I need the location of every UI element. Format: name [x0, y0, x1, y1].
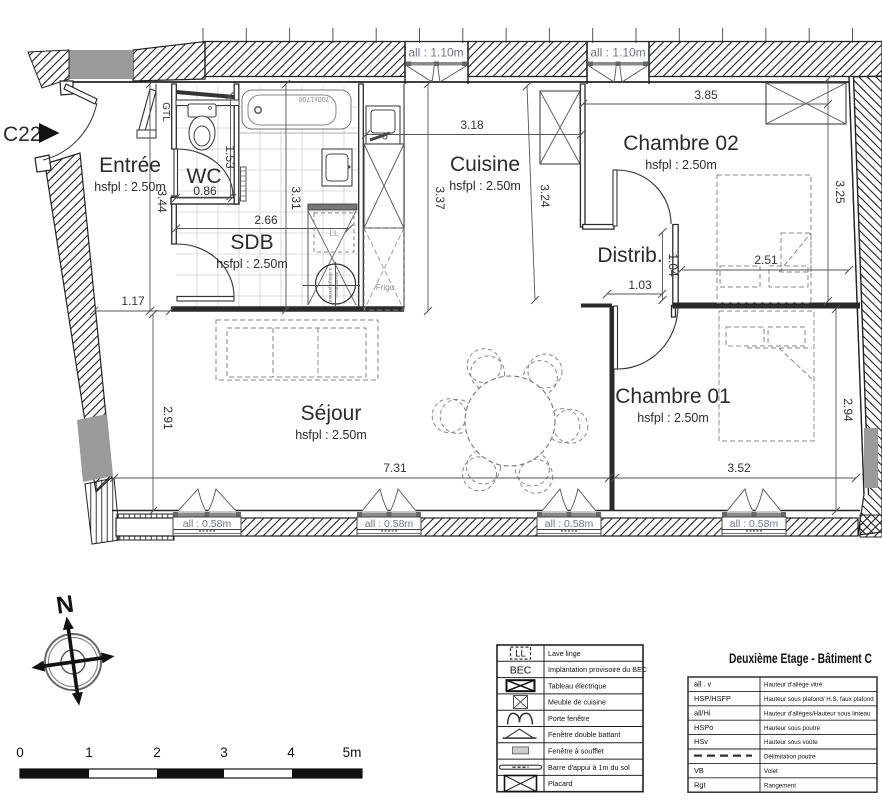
svg-text:all : 0.58m: all : 0.58m [365, 518, 414, 530]
svg-text:3: 3 [220, 745, 228, 760]
svg-text:Implantation provisoire du BEC: Implantation provisoire du BEC [548, 665, 647, 674]
svg-text:LL: LL [330, 229, 339, 238]
svg-text:hsfpl : 2.50m: hsfpl : 2.50m [637, 411, 709, 425]
svg-text:hsfpl : 2.50m: hsfpl : 2.50m [449, 179, 521, 193]
svg-text:Entrée: Entrée [99, 154, 161, 177]
svg-text:GTL: GTL [160, 102, 171, 122]
svg-text:1.53: 1.53 [223, 145, 237, 169]
svg-text:all/Hi: all/Hi [694, 708, 711, 717]
svg-text:Séjour: Séjour [301, 402, 362, 425]
svg-text:SDB: SDB [230, 231, 273, 254]
svg-text:Deuxième Etage - Bâtiment C: Deuxième Etage - Bâtiment C [729, 651, 872, 666]
svg-text:Meuble de cuisine: Meuble de cuisine [548, 698, 606, 707]
svg-text:Hauteur d'allège vitré: Hauteur d'allège vitré [764, 682, 823, 689]
svg-text:3.85: 3.85 [694, 88, 718, 102]
svg-text:a charge preneur: a charge preneur [328, 268, 333, 303]
svg-text:all : 1.10m: all : 1.10m [408, 46, 463, 60]
svg-text:2.91: 2.91 [161, 406, 175, 430]
svg-text:Délimitation poutre: Délimitation poutre [764, 754, 816, 761]
svg-text:3.52: 3.52 [727, 461, 751, 475]
svg-text:LL: LL [515, 649, 526, 660]
svg-text:WC: WC [187, 165, 222, 188]
svg-text:Hauteur sous voûte: Hauteur sous voûte [764, 739, 818, 746]
svg-text:hsfpl : 2.50m: hsfpl : 2.50m [216, 257, 288, 271]
svg-text:1.03: 1.03 [628, 278, 652, 292]
svg-text:BEC: BEC [510, 664, 532, 676]
svg-text:VB: VB [694, 766, 704, 775]
svg-text:4: 4 [287, 745, 295, 760]
svg-text:hsfpl : 2.50m: hsfpl : 2.50m [295, 428, 367, 442]
svg-text:hsfpl : 2.50m: hsfpl : 2.50m [94, 180, 166, 194]
svg-text:5m: 5m [343, 745, 362, 760]
svg-text:1: 1 [85, 745, 93, 760]
svg-text:2.94: 2.94 [841, 398, 855, 422]
svg-text:1.04: 1.04 [666, 253, 680, 277]
svg-text:3.24: 3.24 [538, 184, 553, 208]
svg-text:3.18: 3.18 [460, 118, 484, 132]
svg-text:700x1700: 700x1700 [299, 95, 330, 102]
svg-text:Rgt: Rgt [694, 780, 706, 789]
svg-text:Barre d'appui à 1m du sol: Barre d'appui à 1m du sol [548, 763, 630, 772]
svg-text:Rangement: Rangement [764, 782, 796, 789]
svg-text:all . v: all . v [694, 680, 712, 689]
svg-text:Fenêtre à soufflet: Fenêtre à soufflet [548, 747, 604, 756]
svg-text:Distrib.: Distrib. [597, 244, 662, 267]
svg-text:Hauteur sous plafond/ H.S. fau: Hauteur sous plafond/ H.S. faux plafond [764, 696, 874, 703]
svg-text:Porte fenêtre: Porte fenêtre [548, 714, 590, 723]
svg-text:Hauteur d'allèges/Hauteur sous: Hauteur d'allèges/Hauteur sous linteau [764, 710, 871, 717]
svg-text:Chambre 01: Chambre 01 [615, 385, 731, 408]
svg-text:HSPo: HSPo [694, 723, 713, 732]
svg-text:Cuisine: Cuisine [450, 153, 520, 176]
svg-text:HSv: HSv [694, 737, 708, 746]
svg-text:2: 2 [153, 745, 161, 760]
svg-text:all : 1.10m: all : 1.10m [590, 46, 645, 60]
svg-text:3.31: 3.31 [289, 186, 303, 210]
svg-text:2.51: 2.51 [754, 253, 778, 267]
svg-text:Placard: Placard [548, 779, 572, 788]
svg-text:Volet: Volet [764, 768, 778, 775]
svg-text:1.17: 1.17 [121, 294, 145, 308]
svg-text:hsfpl : 2.50m: hsfpl : 2.50m [645, 158, 717, 172]
svg-text:Hauteur sous poutre: Hauteur sous poutre [764, 725, 821, 732]
svg-text:3.37: 3.37 [433, 186, 447, 210]
svg-text:3.25: 3.25 [833, 180, 847, 204]
svg-text:Lave linge: Lave linge [548, 649, 581, 658]
svg-text:Fenêtre double battant: Fenêtre double battant [548, 730, 620, 739]
svg-text:Tableau électrique: Tableau électrique [548, 681, 606, 690]
svg-text:HSP/HSFP: HSP/HSFP [694, 694, 731, 703]
svg-text:Chambre 02: Chambre 02 [623, 132, 739, 155]
svg-text:all : 0.58m: all : 0.58m [183, 518, 232, 530]
svg-text:60x60x85cm: 60x60x85cm [334, 272, 339, 298]
svg-text:all : 0.58m: all : 0.58m [730, 518, 779, 530]
svg-text:7.31: 7.31 [383, 461, 407, 475]
svg-text:Frigo: Frigo [376, 283, 395, 292]
svg-text:all : 0.58m: all : 0.58m [545, 518, 594, 530]
svg-text:C22: C22 [3, 123, 42, 146]
svg-text:0: 0 [16, 745, 24, 760]
svg-text:2.66: 2.66 [254, 213, 278, 227]
